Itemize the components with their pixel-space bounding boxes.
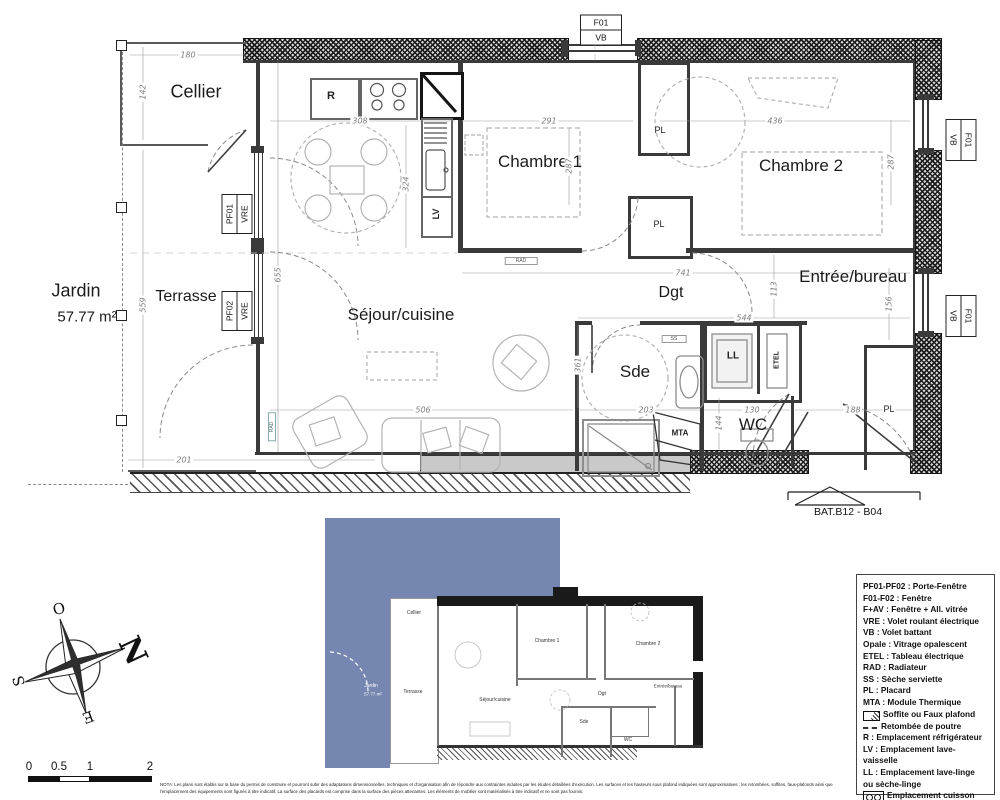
- rad-tag-2: RAD: [268, 413, 276, 442]
- soffite-icon: [863, 711, 880, 721]
- dim-label: 130: [742, 406, 761, 415]
- jardin-area-label: 57.77 m²: [57, 309, 116, 326]
- terrasse-wall-bottom: [128, 470, 256, 472]
- inset-sde-left: [561, 706, 563, 757]
- legend-item: LL : Emplacement lave-linge ou sèche-lin…: [863, 767, 989, 790]
- chambre1-wall-bottom: [458, 248, 582, 253]
- inset-wall-right-1: [693, 606, 703, 661]
- window-tag-code: F01: [581, 16, 621, 30]
- beam-drop-icon: [863, 722, 877, 729]
- sink-counter: [421, 118, 453, 198]
- inset-label-sejour: Séjour/cuisine: [479, 697, 510, 703]
- right-window2-cap-b: [918, 331, 934, 337]
- window-tag-code: PF01: [223, 195, 237, 233]
- legend-item: SS : Sèche serviette: [863, 674, 989, 686]
- wall-right-2: [915, 150, 942, 274]
- dishwasher-tag: LV: [431, 209, 441, 220]
- right-window2-cap-t: [918, 268, 934, 274]
- compass-east: E: [80, 707, 96, 728]
- jardin-post-4: [116, 415, 127, 426]
- room-label-terrasse: Terrasse: [155, 288, 216, 306]
- inset-closet-r: [604, 604, 606, 678]
- scale-tick: 0: [26, 761, 32, 773]
- right-window1-cap-b: [918, 148, 934, 154]
- inset-pl-wall: [674, 686, 676, 746]
- legend-item: Opale : Vitrage opalescent: [863, 639, 989, 651]
- soffite-corner-box: [420, 72, 464, 120]
- terrace-edge-hatch: [130, 472, 690, 493]
- window-tag-code: PF02: [223, 292, 237, 330]
- legend-item-cuisson: Emplacement cuisson: [863, 790, 989, 800]
- scale-tick: 0.5: [51, 761, 67, 773]
- jardin-post-2: [116, 202, 127, 213]
- window-tag-type: VB: [581, 30, 621, 45]
- wall-right-1: [915, 40, 942, 100]
- compass-west: O: [51, 599, 68, 620]
- right-window1-line1: [922, 98, 924, 150]
- room-label-cellier: Cellier: [170, 82, 221, 103]
- jardin-limit-horizontal: [28, 484, 128, 485]
- room-label-dgt: Dgt: [659, 284, 684, 302]
- legend-item: F01-F02 : Fenêtre: [863, 593, 989, 605]
- dim-label: 188: [843, 406, 862, 415]
- legend-item: F+AV : Fenêtre + All. vitrée: [863, 604, 989, 616]
- dim-label: 436: [765, 117, 784, 126]
- cellier-wall-bottom: [120, 144, 208, 146]
- left-glazing-cap-top: [251, 146, 264, 153]
- inset-wall-right-2: [693, 672, 703, 747]
- rad-tag-1: RAD: [505, 257, 538, 265]
- closet-upper: [638, 62, 690, 156]
- room-label-jardin: Jardin: [51, 281, 100, 302]
- jardin-post-1: [116, 40, 127, 51]
- dim-label: 655: [274, 265, 283, 284]
- wall-top-right: [637, 38, 942, 62]
- dim-label: 741: [673, 269, 692, 278]
- legend-item: ETEL : Tableau électrique: [863, 651, 989, 663]
- washer-tag: LL: [727, 351, 739, 362]
- window-tag-code: F01: [962, 296, 976, 336]
- compass-north: N: [111, 631, 154, 671]
- room-label-entree: Entrée/bureau: [799, 267, 907, 287]
- inset-label-jardin: Jardin: [364, 683, 378, 689]
- jardin-post-3: [116, 310, 127, 321]
- legend-item: VRE : Volet roulant électrique: [863, 616, 989, 628]
- scale-segment-black: [28, 776, 59, 782]
- inset-jardin-shade-left: [325, 598, 390, 768]
- dim-label: 287: [887, 152, 896, 171]
- mta-tag: MTA: [672, 429, 689, 438]
- window-tag-type: VB: [947, 296, 962, 336]
- legend-item: VB : Volet battant: [863, 627, 989, 639]
- legend-item-soffite: Soffite ou Faux plafond: [863, 709, 989, 721]
- inset-ll-box: [611, 707, 649, 737]
- legend-item: RAD : Radiateur: [863, 662, 989, 674]
- inset-jardin-shade-top: [325, 518, 560, 598]
- wall-left-lower: [256, 344, 260, 452]
- inset-window-stub: [553, 587, 578, 596]
- dim-label: 308: [350, 117, 369, 126]
- inset-ch1-left: [516, 604, 518, 686]
- legend-item: LV : Emplacement lave-vaisselle: [863, 744, 989, 767]
- inset-label-sde: Sde: [580, 719, 589, 725]
- dim-label: 361: [574, 355, 583, 374]
- inset-label-terrasse: Terrasse: [403, 689, 422, 695]
- cellier-wall-top: [120, 42, 247, 44]
- inset-label-wc: WC: [624, 737, 632, 743]
- scale-segment-black2: [90, 776, 152, 782]
- legend-item: PF01-PF02 : Porte-Fenêtre: [863, 581, 989, 593]
- dim-label: 142: [139, 82, 148, 101]
- ll-etel-divider: [757, 326, 760, 394]
- fridge-tag: R: [327, 90, 335, 102]
- wc-wall-right: [791, 396, 794, 466]
- dim-label: 324: [402, 174, 411, 193]
- dim-label: 287: [565, 156, 574, 175]
- door-leaves: [208, 130, 915, 465]
- legend-item-text: Soffite ou Faux plafond: [883, 709, 975, 721]
- top-window-line2: [567, 50, 637, 52]
- nota-disclaimer: NOTA: Les plans sont établis sur la base…: [160, 781, 850, 796]
- legend-item-text: Emplacement cuisson: [887, 790, 975, 800]
- dim-label: 506: [413, 406, 432, 415]
- top-window-cap-l: [562, 40, 568, 56]
- dim-label: 559: [139, 295, 148, 314]
- inset-label-jardin-area: 57.77 m²: [364, 692, 382, 697]
- right-window1-line2: [927, 98, 929, 150]
- window-tag-type: VRE: [237, 195, 252, 233]
- wall-top-inner-line: [243, 60, 940, 63]
- unit-reference: BAT.B12 - B04: [814, 506, 882, 518]
- sde-wall-left: [575, 321, 579, 471]
- chambre2-wall-bottom: [686, 248, 915, 253]
- etel-tag: ETEL: [774, 351, 781, 369]
- inset-label-chambre1: Chambre 1: [535, 638, 560, 644]
- ll-etel-closet: [704, 323, 802, 403]
- dim-label: 291: [539, 117, 558, 126]
- placard-tag-2: PL: [653, 219, 664, 229]
- inset-ch1-bottom: [516, 678, 596, 680]
- scale-tick: 1: [87, 761, 93, 773]
- inset-label-cellier: Cellier: [407, 610, 421, 616]
- inset-terrace-hatch: [437, 748, 637, 760]
- inset-wall-top: [437, 596, 703, 606]
- room-label-sde: Sde: [620, 362, 650, 382]
- legend-item: R : Emplacement réfrigérateur: [863, 732, 989, 744]
- placard-tag-3: PL: [882, 404, 895, 414]
- inset-label-entree: Entrée/bureau: [654, 684, 683, 689]
- wall-top-left: [243, 38, 569, 62]
- dim-label: 113: [770, 279, 779, 298]
- room-label-chambre2: Chambre 2: [759, 156, 843, 176]
- dim-label: 201: [174, 456, 193, 465]
- cooktop-icon: [863, 791, 884, 800]
- legend-item-text: Retombée de poutre: [881, 721, 961, 733]
- ss-tag: SS: [662, 335, 687, 343]
- floor-plan-sheet: O N S E Cellier Jardin 57.77 m² Terrasse…: [0, 0, 1000, 800]
- dim-label: 144: [715, 413, 724, 432]
- window-tag-type: VB: [947, 120, 962, 160]
- room-label-wc: WC: [739, 415, 767, 435]
- inset-closet-l: [586, 604, 588, 678]
- right-window1-cap-t: [918, 94, 934, 100]
- plan-graphics: O N S E: [0, 0, 1000, 800]
- legend-item-retombee: Retombée de poutre: [863, 721, 989, 733]
- legend-item: PL : Placard: [863, 685, 989, 697]
- cooktop-box: [360, 78, 418, 120]
- compass-south: S: [9, 674, 29, 689]
- dim-label: 203: [636, 406, 655, 415]
- dim-label: 544: [734, 314, 753, 323]
- window-tag-code: F01: [962, 120, 976, 160]
- top-window-cap-r: [635, 40, 641, 56]
- wall-bottom-inner-line: [255, 452, 915, 455]
- legend-box: PF01-PF02 : Porte-Fenêtre F01-F02 : Fenê…: [856, 574, 995, 795]
- dim-label: 180: [178, 51, 197, 60]
- inset-wall-left: [437, 606, 439, 746]
- window-tag-type: VRE: [237, 292, 252, 330]
- right-window2-line2: [927, 272, 929, 333]
- dim-label: 156: [885, 294, 894, 313]
- left-glazing-cap-bottom: [251, 337, 264, 344]
- inset-label-dgt: Dgt: [598, 691, 606, 697]
- room-label-sejour: Séjour/cuisine: [348, 305, 455, 325]
- inset-ch2-bottom: [604, 678, 694, 680]
- jardin-limit-vertical: [122, 42, 123, 472]
- compass-rose: O N S E: [9, 599, 154, 728]
- placard-tag-1: PL: [654, 125, 665, 135]
- scale-segment-white: [59, 776, 90, 782]
- right-window2-line1: [922, 272, 924, 333]
- wall-left-upper: [256, 60, 260, 150]
- left-mullion: [251, 238, 264, 254]
- legend-item: MTA : Module Thermique: [863, 697, 989, 709]
- scale-tick: 2: [147, 761, 153, 773]
- inset-annex-strip: [390, 598, 439, 764]
- inset-label-chambre2: Chambre 2: [636, 641, 661, 647]
- entry-bracket: [788, 487, 920, 505]
